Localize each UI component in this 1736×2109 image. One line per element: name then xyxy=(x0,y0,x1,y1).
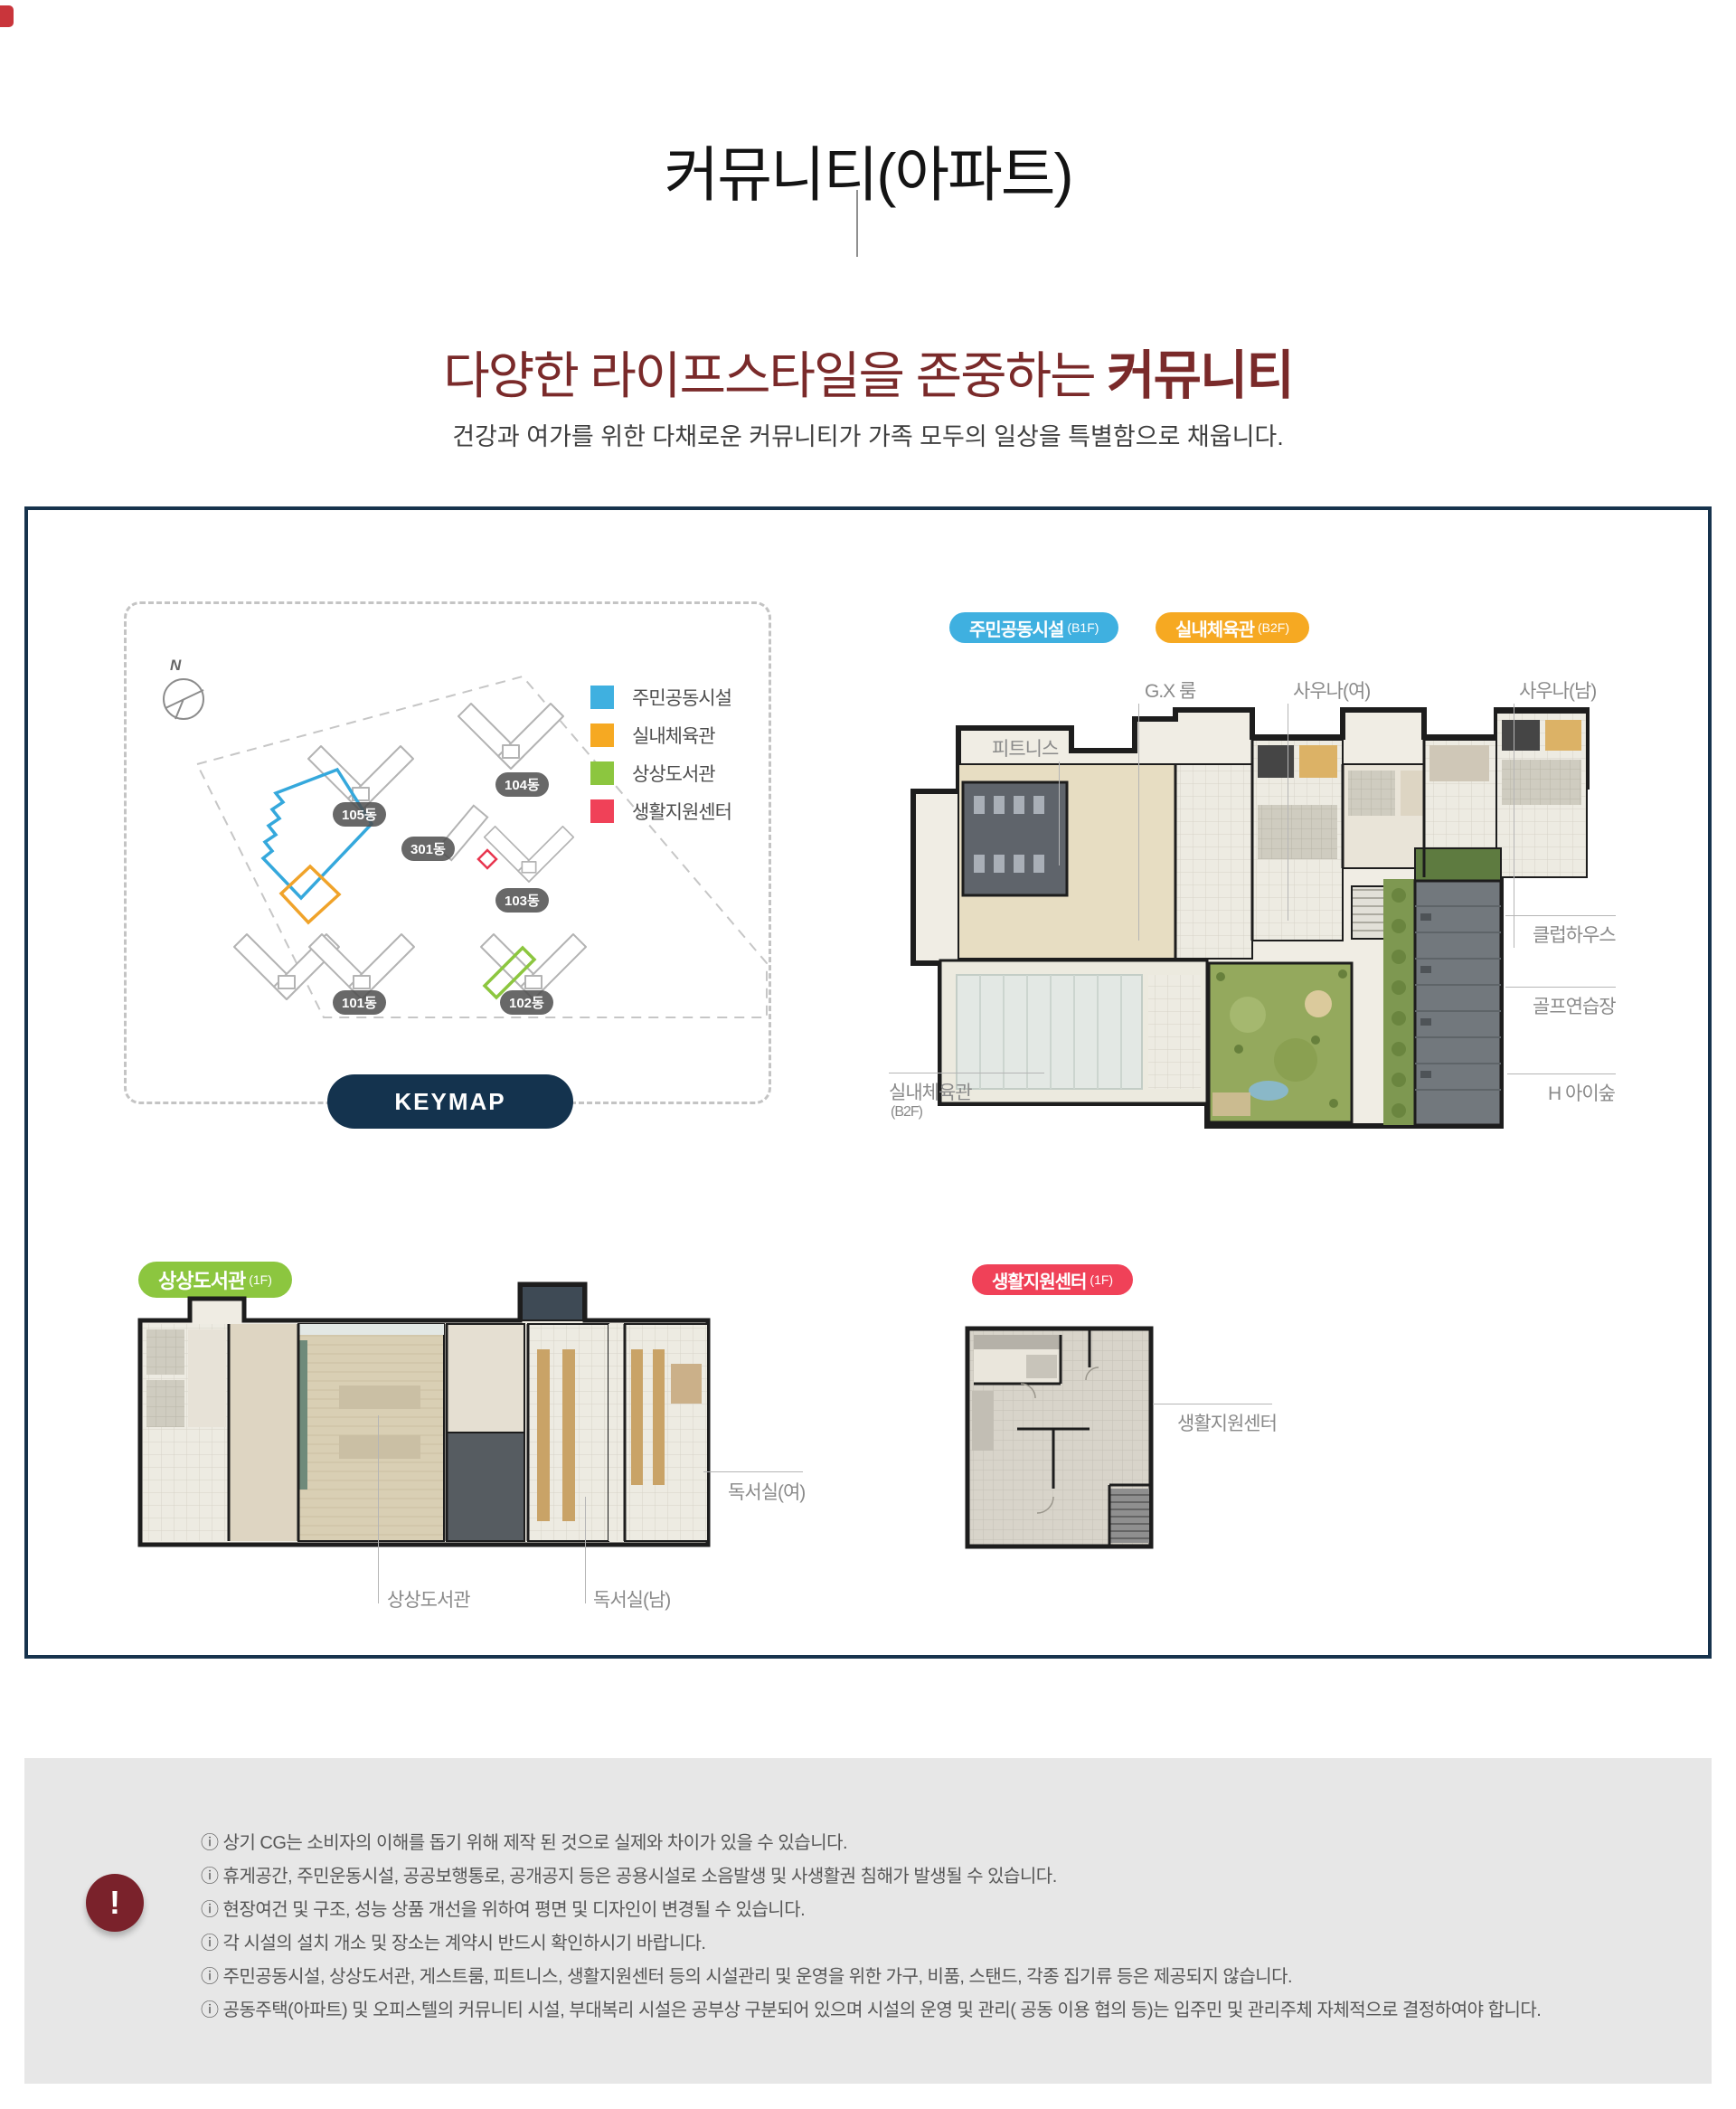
page-description: 건강과 여가를 위한 다채로운 커뮤니티가 가족 모두의 일상을 특별함으로 채… xyxy=(0,417,1736,452)
subtitle-emphasis: 커뮤니티 xyxy=(1107,346,1292,405)
legend-swatch-library xyxy=(590,761,614,785)
building-pill-104: 104동 xyxy=(495,772,549,797)
label-support: 생활지원센터 xyxy=(1177,1409,1277,1436)
subtitle: 다양한 라이프스타일을 존중하는 커뮤니티 xyxy=(0,333,1736,409)
label-sauna-w: 사우나(여) xyxy=(1293,676,1370,704)
compass-icon xyxy=(164,679,203,719)
corner-logo-fragment xyxy=(0,5,14,27)
building-pill-301: 301동 xyxy=(401,837,455,861)
notice-item: ⓘ 주민공동시설, 상상도서관, 게스트룸, 피트니스, 생활지원센터 등의 시… xyxy=(201,1961,1541,1994)
label-library: 상상도서관 xyxy=(387,1585,470,1612)
legend-item-library: 상상도서관 xyxy=(590,760,715,787)
leader-fitness xyxy=(1059,761,1060,865)
warning-icon: ! xyxy=(86,1874,144,1932)
legend-item-support: 생활지원센터 xyxy=(590,798,731,825)
leader-gx-room xyxy=(1138,704,1139,941)
legend-swatch-gym xyxy=(590,723,614,747)
leader-reading-m xyxy=(585,1497,586,1603)
legend-item-gym: 실내체육관 xyxy=(590,722,715,749)
leader-support xyxy=(1153,1404,1272,1404)
badge-community-b1f: 주민공동시설 (B1F) xyxy=(949,612,1118,643)
label-kids-forest: H 아이숲 xyxy=(1548,1079,1615,1106)
leader-sauna-m xyxy=(1514,704,1514,948)
leader-reading-w xyxy=(703,1471,803,1472)
notice-item: ⓘ 현장여건 및 구조, 성능 상품 개선을 위하여 평면 및 디자인이 변경될… xyxy=(201,1894,1541,1927)
page-title: 커뮤니티(아파트) xyxy=(0,127,1736,213)
label-reading-m: 독서실(남) xyxy=(593,1585,670,1612)
leader-clubhouse xyxy=(1505,915,1616,916)
keymap-button[interactable]: KEYMAP xyxy=(327,1074,573,1129)
community-page: 커뮤니티(아파트) 다양한 라이프스타일을 존중하는 커뮤니티 건강과 여가를 … xyxy=(0,0,1736,2109)
leader-golf xyxy=(1505,987,1616,988)
building-pill-105: 105동 xyxy=(333,802,386,827)
leader-kids-forest xyxy=(1507,1073,1616,1074)
community-floor-plan xyxy=(863,669,1641,1149)
notice-item: ⓘ 휴게공간, 주민운동시설, 공공보행통로, 공개공지 등은 공용시설로 소음… xyxy=(201,1860,1541,1894)
building-pill-101: 101동 xyxy=(333,990,386,1015)
notice-item: ⓘ 상기 CG는 소비자의 이해를 돕기 위해 제작 된 것으로 실제와 차이가… xyxy=(201,1827,1541,1860)
label-sauna-m: 사우나(남) xyxy=(1519,676,1596,704)
label-clubhouse: 클럽하우스 xyxy=(1533,921,1616,948)
library-floor-plan xyxy=(136,1277,719,1554)
badge-gym-b2f: 실내체육관 (B2F) xyxy=(1156,612,1309,643)
legend-item-community: 주민공동시설 xyxy=(590,684,731,711)
support-facility-outline xyxy=(478,850,496,868)
notice-list: ⓘ 상기 CG는 소비자의 이해를 돕기 위해 제작 된 것으로 실제와 차이가… xyxy=(201,1827,1541,2028)
support-floor-plan xyxy=(963,1320,1157,1551)
leader-library xyxy=(378,1415,379,1603)
label-fitness: 피트니스 xyxy=(992,734,1058,761)
label-golf: 골프연습장 xyxy=(1533,992,1616,1019)
notice-item: ⓘ 각 시설의 설치 개소 및 장소는 계약시 반드시 확인하시기 바랍니다. xyxy=(201,1927,1541,1961)
leader-indoor-gym xyxy=(889,1073,1044,1073)
compass-north-label: N xyxy=(170,657,181,675)
subtitle-prefix: 다양한 라이프스타일을 존중하는 xyxy=(443,347,1107,404)
building-pill-103: 103동 xyxy=(495,888,549,913)
leader-sauna-w xyxy=(1288,704,1288,921)
badge-support-1f: 생활지원센터 (1F) xyxy=(972,1264,1133,1295)
label-reading-w: 독서실(여) xyxy=(728,1478,805,1505)
building-pill-102: 102동 xyxy=(500,990,553,1015)
title-divider xyxy=(856,190,858,257)
notice-item: ⓘ 공동주택(아파트) 및 오피스텔의 커뮤니티 시설, 부대복리 시설은 공부… xyxy=(201,1994,1541,2028)
gym-facility-outline xyxy=(281,866,339,922)
label-gx-room: G.X 룸 xyxy=(1145,676,1195,704)
legend-swatch-support xyxy=(590,799,614,823)
label-indoor-gym-floor: (B2F) xyxy=(891,1104,922,1120)
legend-swatch-community xyxy=(590,686,614,709)
